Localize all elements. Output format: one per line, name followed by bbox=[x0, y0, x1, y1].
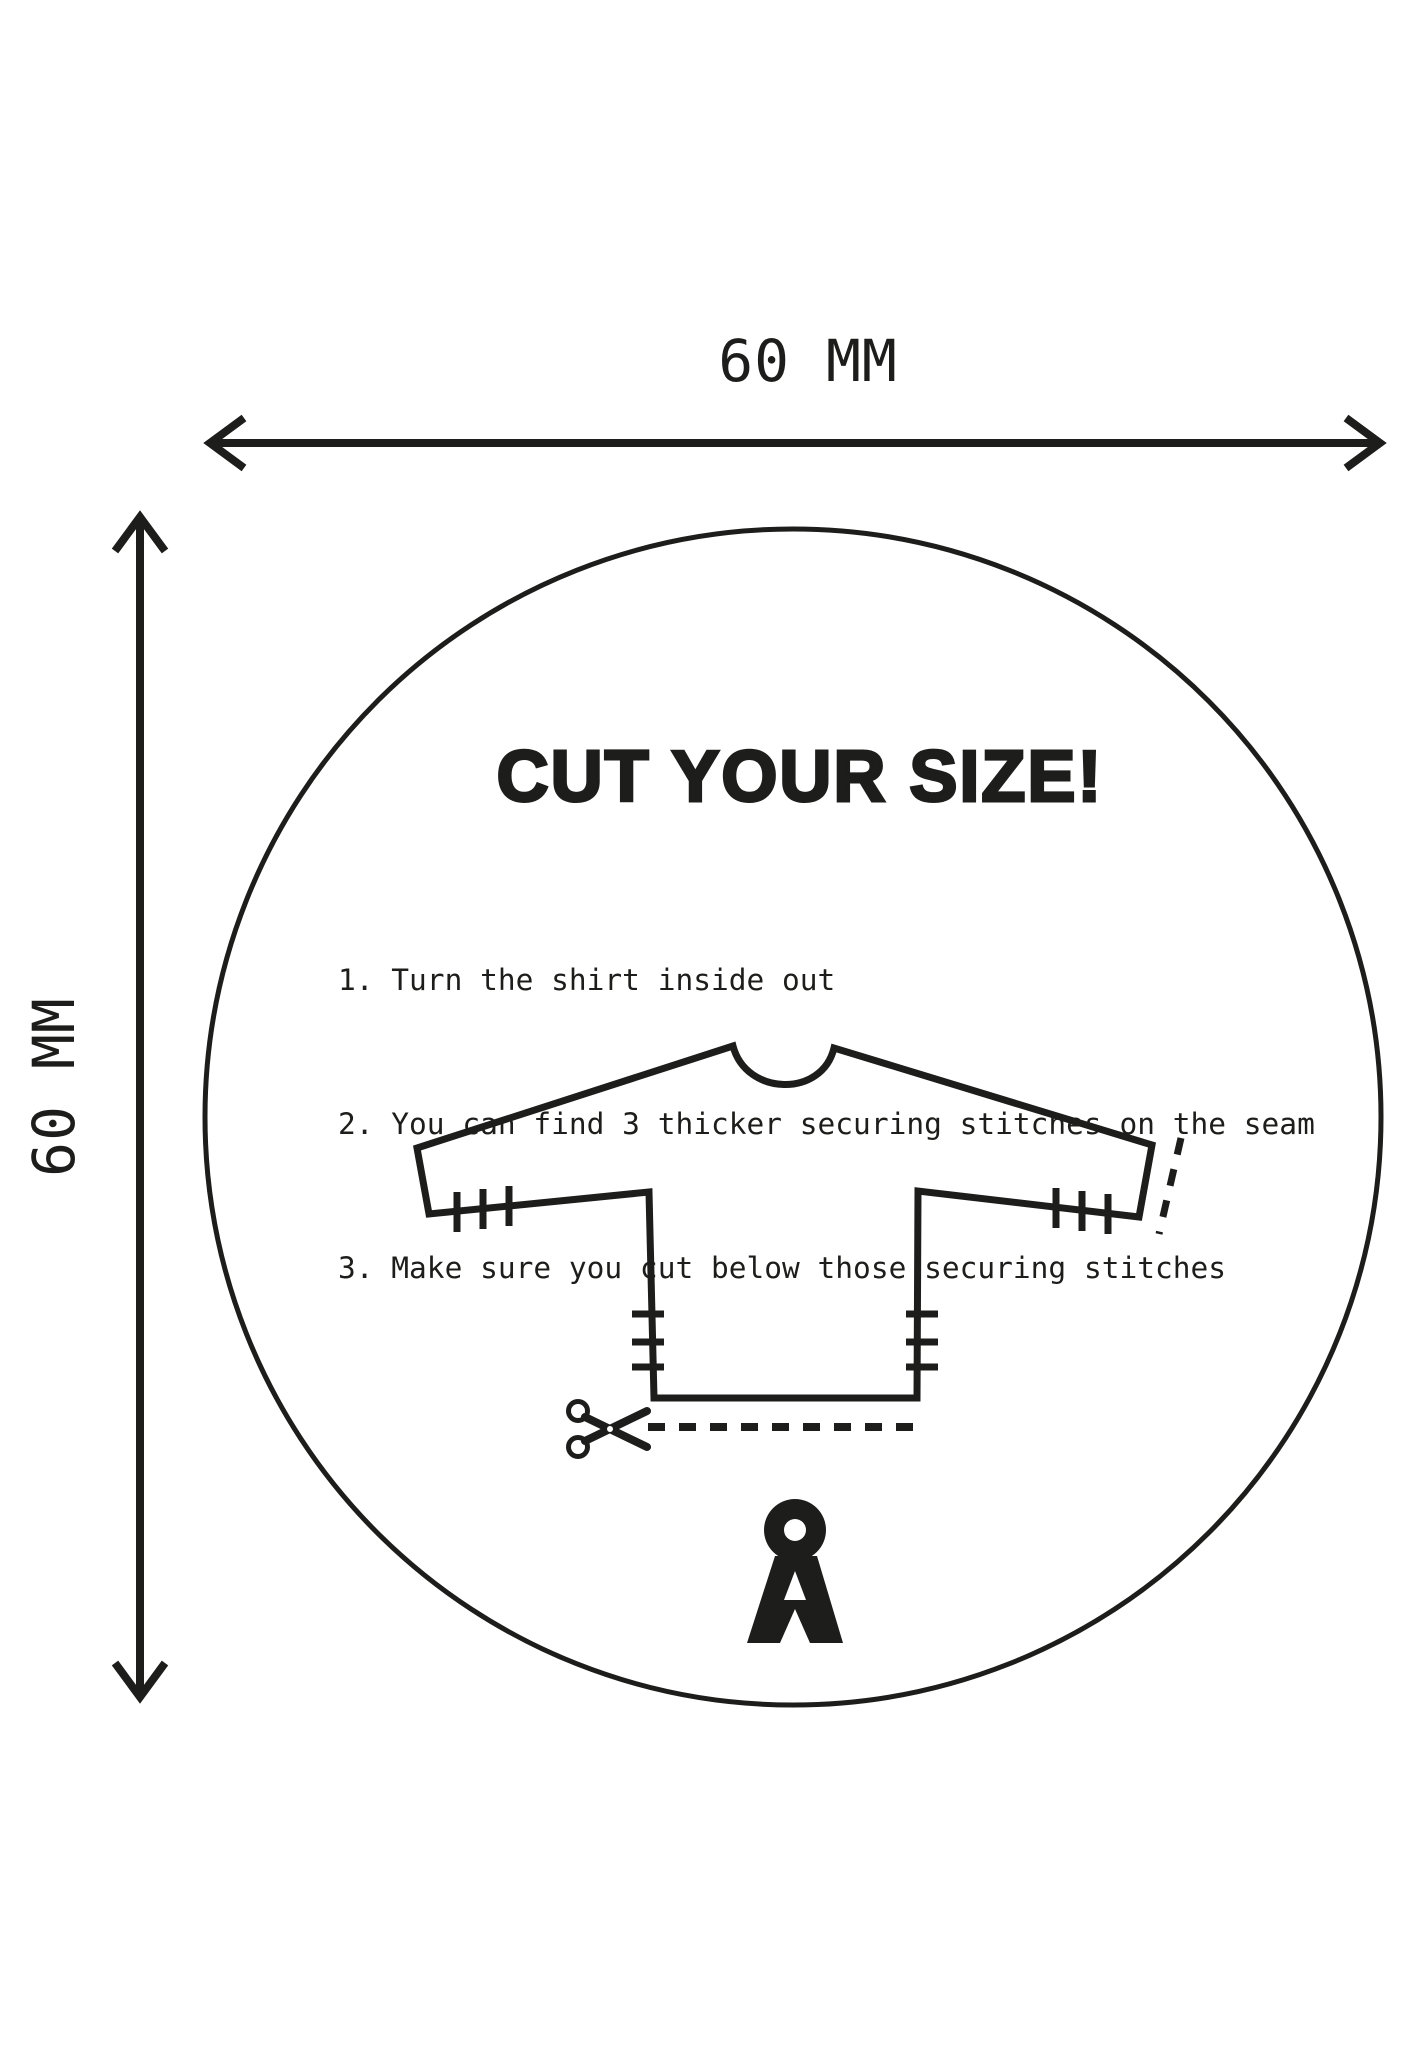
instruction-line-2: 2. You can find 3 thicker securing stitc… bbox=[338, 1100, 1315, 1148]
instruction-line-1: 1. Turn the shirt inside out bbox=[338, 956, 1315, 1004]
vertical-dimension-arrow bbox=[115, 517, 165, 1697]
instruction-list: 1. Turn the shirt inside out 2. You can … bbox=[338, 860, 1315, 1388]
care-label-diagram: 60 MM 60 MM CUT YOUR SIZE! 1. Turn the s… bbox=[0, 0, 1422, 2048]
a-ring-brand-logo-icon bbox=[747, 1499, 843, 1643]
badge-title: CUT YOUR SIZE! bbox=[400, 737, 1200, 817]
instruction-line-3: 3. Make sure you cut below those securin… bbox=[338, 1244, 1315, 1292]
dimension-label-top: 60 MM bbox=[658, 331, 958, 391]
scissors-icon bbox=[569, 1402, 648, 1457]
dimension-label-left: 60 MM bbox=[24, 937, 84, 1237]
horizontal-dimension-arrow bbox=[210, 418, 1380, 468]
